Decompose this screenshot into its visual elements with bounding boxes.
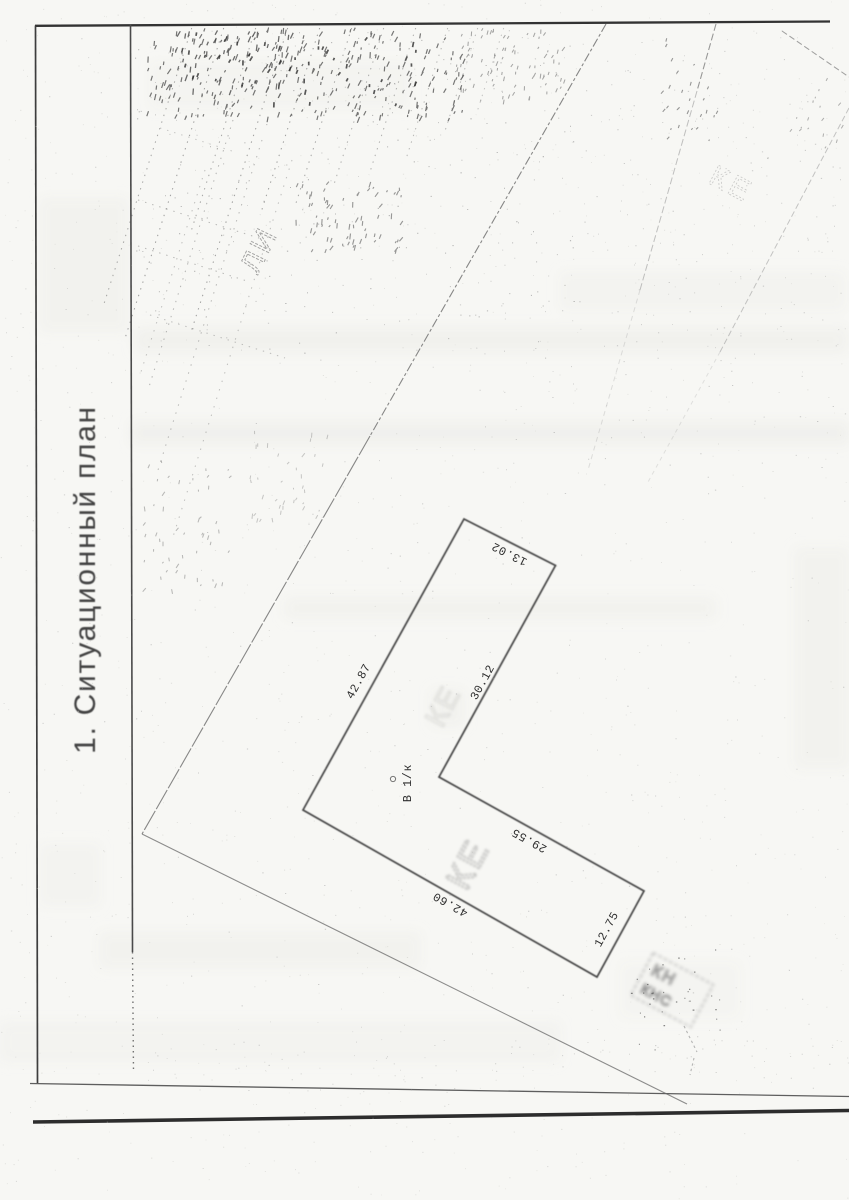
svg-text:1. Ситуационный план: 1. Ситуационный план bbox=[69, 405, 102, 754]
svg-text:В 1/к: В 1/к bbox=[401, 764, 415, 802]
